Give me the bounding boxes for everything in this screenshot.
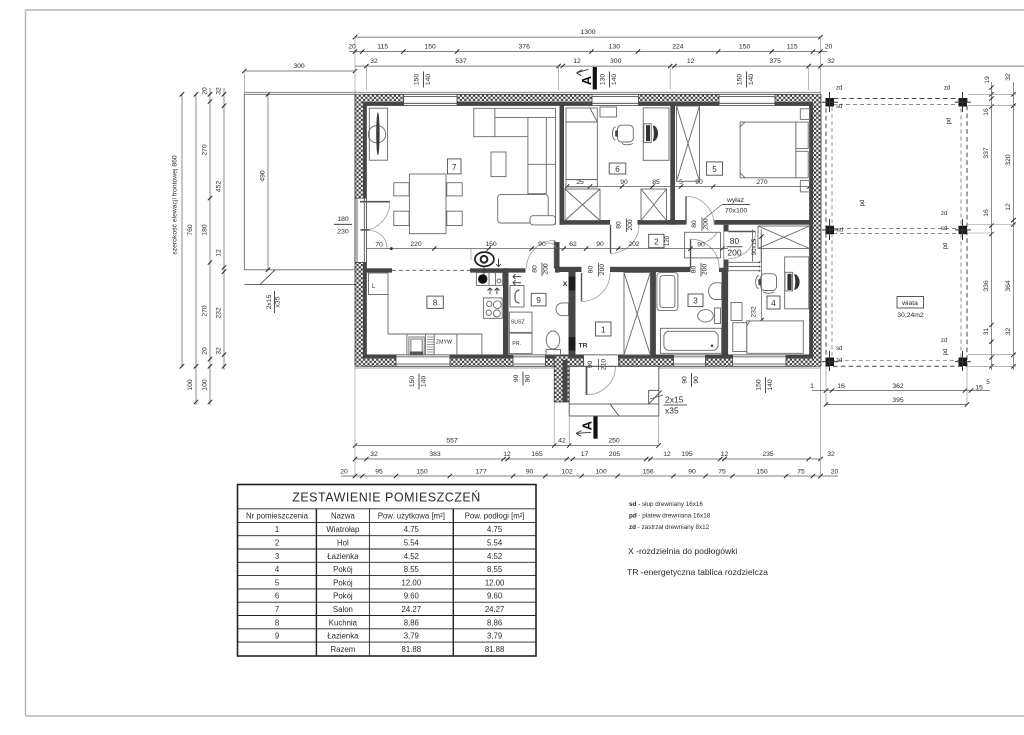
svg-text:X: X — [563, 281, 568, 288]
svg-text:Łazienka: Łazienka — [327, 632, 359, 641]
svg-text:42: 42 — [558, 438, 566, 445]
svg-text:156: 156 — [642, 469, 654, 476]
svg-text:102: 102 — [561, 469, 573, 476]
svg-text:3,79: 3,79 — [487, 632, 502, 641]
svg-text:150: 150 — [756, 379, 763, 391]
svg-text:395: 395 — [892, 397, 904, 404]
svg-text:12: 12 — [216, 249, 223, 257]
svg-text:5: 5 — [275, 578, 280, 587]
svg-text:32: 32 — [370, 451, 378, 458]
svg-text:232: 232 — [216, 307, 223, 319]
svg-text:6: 6 — [275, 592, 279, 601]
svg-text:383: 383 — [429, 451, 441, 458]
svg-text:7: 7 — [275, 605, 279, 614]
svg-text:300: 300 — [610, 58, 622, 65]
svg-text:1: 1 — [601, 326, 606, 335]
svg-text:100: 100 — [595, 469, 607, 476]
svg-text:1300: 1300 — [580, 29, 595, 36]
svg-text:557: 557 — [446, 438, 458, 445]
svg-text:177: 177 — [475, 469, 487, 476]
svg-text:130: 130 — [600, 74, 607, 86]
svg-text:90: 90 — [513, 375, 520, 383]
svg-text:4.52: 4.52 — [487, 552, 502, 561]
svg-text:90: 90 — [526, 469, 534, 476]
svg-text:270: 270 — [202, 305, 209, 317]
svg-text:75: 75 — [797, 469, 805, 476]
svg-text:250: 250 — [608, 438, 620, 445]
svg-text:24.27: 24.27 — [485, 605, 505, 614]
svg-text:376: 376 — [519, 44, 531, 51]
svg-text:30,24m2: 30,24m2 — [897, 312, 924, 319]
svg-text:362: 362 — [892, 383, 904, 390]
svg-text:X -rozdzielnia do podłogówki: X -rozdzielnia do podłogówki — [628, 546, 737, 556]
svg-text:sd - słup drewniany 16x16: sd - słup drewniany 16x16 — [629, 501, 703, 508]
svg-text:490: 490 — [260, 170, 267, 182]
svg-text:180: 180 — [337, 216, 349, 223]
svg-text:32: 32 — [216, 87, 223, 95]
svg-text:150: 150 — [409, 376, 416, 388]
svg-text:200: 200 — [543, 263, 550, 275]
svg-text:SUSZ: SUSZ — [511, 320, 525, 326]
svg-text:8.55: 8.55 — [487, 565, 503, 574]
svg-text:32: 32 — [370, 58, 378, 65]
svg-text:140: 140 — [425, 74, 432, 86]
svg-text:24.27: 24.27 — [402, 605, 422, 614]
svg-text:16: 16 — [983, 108, 990, 116]
svg-text:ZMYW: ZMYW — [436, 340, 452, 346]
svg-text:270: 270 — [756, 179, 768, 186]
svg-text:62: 62 — [569, 241, 577, 248]
svg-text:8: 8 — [433, 299, 438, 308]
svg-text:200: 200 — [702, 264, 709, 276]
svg-text:A: A — [579, 75, 594, 85]
svg-text:85: 85 — [652, 179, 660, 186]
svg-text:336: 336 — [983, 280, 990, 292]
svg-text:wiata: wiata — [901, 300, 918, 307]
svg-text:17: 17 — [581, 451, 589, 458]
svg-text:75: 75 — [718, 469, 726, 476]
svg-text:90x15: 90x15 — [752, 238, 758, 255]
svg-text:sd: sd — [941, 226, 947, 232]
svg-text:2: 2 — [654, 237, 659, 246]
svg-text:zd: zd — [836, 358, 842, 364]
svg-text:20: 20 — [202, 87, 209, 95]
svg-text:x35: x35 — [275, 296, 282, 307]
svg-text:165: 165 — [531, 451, 543, 458]
svg-text:320: 320 — [1005, 154, 1012, 166]
svg-text:pd - płatew drewniana 16x18: pd - płatew drewniana 16x18 — [629, 513, 711, 520]
svg-text:12: 12 — [573, 58, 581, 65]
svg-text:wyłaz: wyłaz — [726, 197, 745, 204]
svg-text:2x15: 2x15 — [665, 395, 684, 405]
svg-text:537: 537 — [455, 58, 467, 65]
svg-text:5: 5 — [986, 380, 990, 386]
svg-text:32: 32 — [827, 58, 835, 65]
svg-text:9: 9 — [536, 296, 541, 305]
svg-text:TR -energetyczna tablica rozdz: TR -energetyczna tablica rozdzielcza — [627, 567, 768, 577]
svg-text:Pokój: Pokój — [333, 592, 353, 601]
svg-text:80: 80 — [691, 266, 698, 274]
svg-text:Kuchnia: Kuchnia — [329, 618, 358, 627]
svg-text:Pow. użytkowa [m²]: Pow. użytkowa [m²] — [378, 512, 445, 521]
svg-text:202: 202 — [628, 241, 640, 248]
svg-text:115: 115 — [787, 44, 798, 51]
svg-text:pd: pd — [860, 200, 866, 207]
svg-text:760: 760 — [187, 224, 194, 236]
svg-text:90: 90 — [538, 241, 546, 248]
svg-text:130: 130 — [609, 44, 621, 51]
svg-text:95: 95 — [375, 469, 383, 476]
svg-text:Pokój: Pokój — [333, 565, 353, 574]
svg-text:80: 80 — [616, 221, 623, 229]
svg-text:pd: pd — [947, 118, 953, 125]
svg-text:L: L — [372, 284, 376, 290]
svg-text:zd: zd — [941, 338, 947, 344]
svg-text:150: 150 — [739, 44, 751, 51]
svg-text:6: 6 — [615, 165, 620, 174]
svg-text:x35: x35 — [665, 406, 679, 416]
svg-text:90: 90 — [693, 376, 700, 384]
svg-text:7: 7 — [452, 163, 457, 172]
svg-text:20: 20 — [831, 469, 839, 476]
svg-text:8.55: 8.55 — [404, 565, 420, 574]
svg-text:zd: zd — [836, 86, 842, 92]
svg-text:Razem: Razem — [331, 645, 356, 654]
svg-text:20: 20 — [825, 44, 833, 51]
svg-text:5: 5 — [712, 165, 717, 174]
svg-text:zd - zastrzał drewniany 8x12: zd - zastrzał drewniany 8x12 — [629, 524, 710, 531]
svg-text:90: 90 — [587, 361, 594, 369]
svg-text:2: 2 — [275, 539, 279, 548]
svg-text:81.88: 81.88 — [485, 645, 505, 654]
svg-text:90: 90 — [682, 376, 689, 384]
svg-text:Pow. podłogi [m²]: Pow. podłogi [m²] — [465, 512, 525, 521]
svg-text:200: 200 — [599, 264, 606, 276]
svg-text:100: 100 — [202, 379, 209, 391]
svg-text:452: 452 — [216, 181, 223, 193]
svg-text:5: 5 — [679, 179, 683, 186]
svg-text:3: 3 — [693, 297, 698, 306]
svg-text:150: 150 — [416, 469, 428, 476]
svg-text:12: 12 — [503, 451, 511, 458]
svg-text:140: 140 — [611, 74, 618, 86]
svg-text:Nr pomieszczenia: Nr pomieszczenia — [246, 512, 309, 521]
svg-text:337: 337 — [983, 147, 990, 159]
svg-text:12.00: 12.00 — [402, 578, 422, 587]
svg-text:1: 1 — [810, 383, 814, 390]
svg-text:195: 195 — [681, 451, 693, 458]
svg-text:90: 90 — [620, 179, 628, 186]
svg-text:150: 150 — [485, 241, 497, 248]
svg-text:200: 200 — [727, 248, 741, 258]
svg-text:270: 270 — [202, 144, 209, 156]
svg-text:Pokój: Pokój — [333, 578, 353, 587]
svg-text:80: 80 — [532, 265, 539, 273]
svg-text:Łazienka: Łazienka — [327, 552, 359, 561]
svg-text:15: 15 — [975, 385, 983, 392]
svg-text:81.88: 81.88 — [402, 645, 422, 654]
svg-text:80: 80 — [730, 236, 740, 246]
svg-text:Wiatrołap: Wiatrołap — [326, 525, 360, 534]
svg-text:Hol: Hol — [337, 539, 349, 548]
svg-text:3: 3 — [275, 552, 279, 561]
svg-text:4: 4 — [275, 565, 280, 574]
svg-text:80: 80 — [588, 266, 595, 274]
svg-text:1: 1 — [275, 525, 279, 534]
svg-text:20: 20 — [348, 44, 356, 51]
svg-text:205: 205 — [609, 451, 621, 458]
svg-text:sd: sd — [837, 228, 843, 234]
svg-text:140: 140 — [421, 376, 428, 388]
svg-text:zd: zd — [941, 211, 947, 217]
svg-text:235: 235 — [762, 451, 774, 458]
svg-text:200: 200 — [703, 218, 710, 230]
svg-text:32: 32 — [1005, 73, 1012, 81]
svg-text:9: 9 — [275, 632, 279, 641]
svg-text:150: 150 — [756, 469, 768, 476]
svg-text:pd: pd — [943, 349, 949, 356]
svg-text:16: 16 — [983, 209, 990, 217]
svg-text:90: 90 — [525, 375, 532, 383]
svg-text:4.75: 4.75 — [404, 525, 420, 534]
svg-text:100: 100 — [187, 379, 194, 391]
svg-text:19: 19 — [984, 76, 991, 84]
svg-text:80: 80 — [691, 220, 698, 228]
svg-text:sd: sd — [836, 346, 842, 352]
svg-text:224: 224 — [672, 44, 684, 51]
svg-text:140: 140 — [748, 74, 755, 86]
svg-text:Salon: Salon — [333, 605, 353, 614]
svg-text:32: 32 — [216, 347, 223, 355]
svg-text:70x100: 70x100 — [725, 208, 748, 215]
svg-text:364: 364 — [1005, 280, 1012, 292]
svg-text:32: 32 — [1005, 328, 1012, 336]
svg-text:szerokość elewacji frontowej 8: szerokość elewacji frontowej 860 — [172, 155, 179, 255]
svg-text:150: 150 — [737, 74, 744, 86]
svg-text:sd: sd — [836, 104, 842, 110]
svg-text:8,86: 8,86 — [487, 618, 502, 627]
svg-text:375: 375 — [770, 58, 782, 65]
svg-text:180: 180 — [202, 224, 209, 236]
svg-text:20: 20 — [202, 347, 209, 355]
svg-text:12: 12 — [663, 451, 671, 458]
svg-text:232: 232 — [751, 306, 758, 318]
svg-text:20: 20 — [340, 469, 348, 476]
svg-text:5.54: 5.54 — [404, 539, 420, 548]
svg-text:3,79: 3,79 — [404, 632, 419, 641]
svg-text:2x15: 2x15 — [266, 294, 273, 309]
svg-text:90: 90 — [688, 469, 696, 476]
svg-text:ZESTAWIENIE POMIESZCZEŃ: ZESTAWIENIE POMIESZCZEŃ — [292, 490, 481, 505]
svg-text:5.54: 5.54 — [487, 539, 503, 548]
svg-text:230: 230 — [337, 229, 349, 236]
svg-text:115: 115 — [377, 44, 388, 51]
svg-text:200: 200 — [627, 219, 634, 231]
svg-text:90: 90 — [596, 241, 604, 248]
svg-text:PR.: PR. — [512, 341, 521, 347]
svg-text:4: 4 — [771, 299, 776, 308]
svg-text:140: 140 — [767, 379, 774, 391]
svg-text:4.75: 4.75 — [487, 525, 503, 534]
svg-text:70: 70 — [375, 242, 383, 249]
svg-text:8: 8 — [275, 618, 279, 627]
svg-text:A: A — [580, 420, 595, 430]
svg-text:zd: zd — [944, 86, 950, 92]
svg-text:12: 12 — [721, 451, 729, 458]
svg-text:8,86: 8,86 — [404, 618, 419, 627]
svg-text:12: 12 — [1005, 203, 1012, 211]
svg-text:TR: TR — [578, 343, 587, 350]
svg-text:12.00: 12.00 — [485, 578, 505, 587]
svg-text:150: 150 — [424, 44, 436, 51]
svg-text:4.52: 4.52 — [404, 552, 419, 561]
svg-text:Nazwa: Nazwa — [331, 512, 355, 521]
svg-text:12: 12 — [687, 58, 695, 65]
svg-text:32: 32 — [827, 451, 835, 458]
svg-text:120: 120 — [665, 235, 671, 246]
svg-text:9.60: 9.60 — [487, 592, 503, 601]
svg-text:pd: pd — [943, 243, 949, 250]
svg-text:16: 16 — [837, 383, 845, 390]
svg-text:210: 210 — [601, 359, 608, 371]
svg-text:9.60: 9.60 — [404, 592, 420, 601]
svg-text:150: 150 — [414, 74, 421, 86]
svg-text:31: 31 — [983, 328, 990, 336]
svg-text:220: 220 — [410, 241, 422, 248]
svg-text:300: 300 — [293, 63, 305, 70]
